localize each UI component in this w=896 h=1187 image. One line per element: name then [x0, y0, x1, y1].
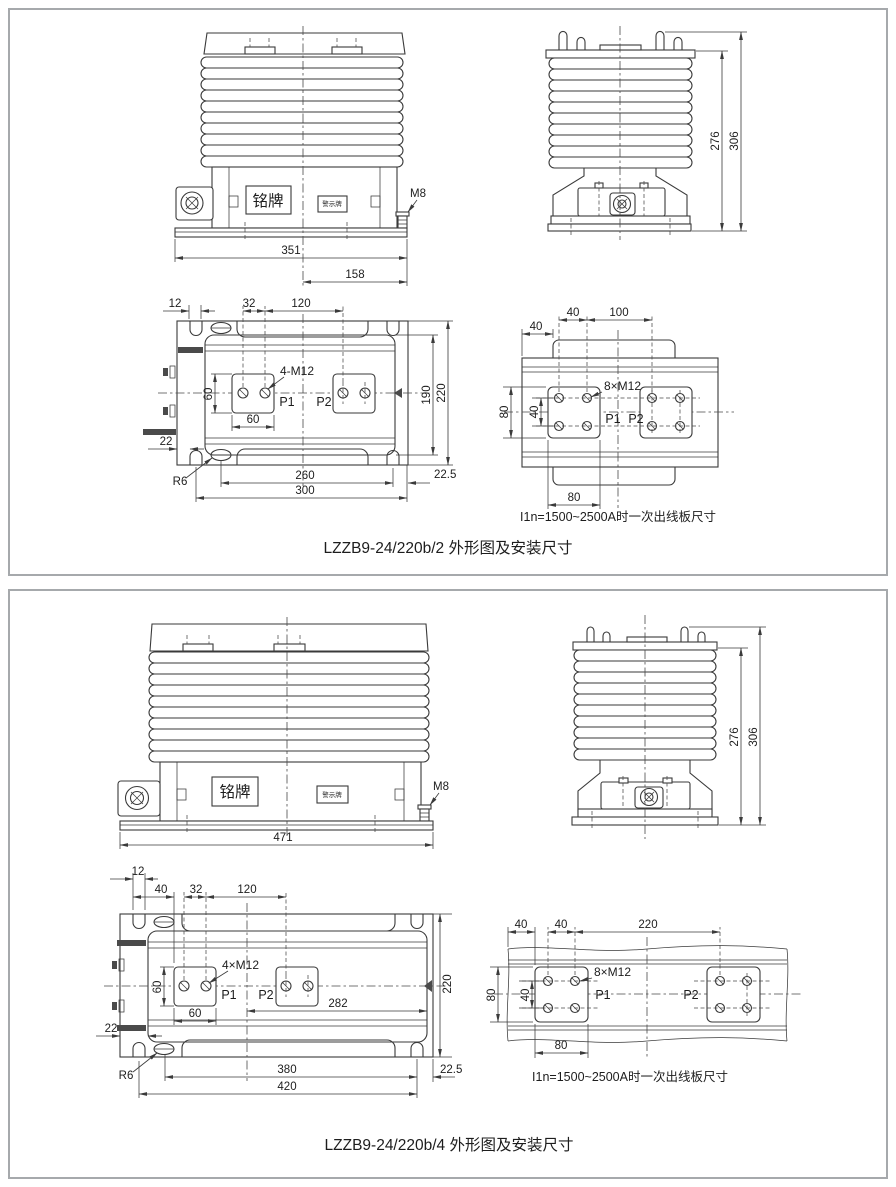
- label-p1: P1: [279, 395, 294, 409]
- dim-32: 32: [243, 298, 256, 310]
- dim-22-5: 22.5: [434, 469, 456, 481]
- dim-12: 12: [132, 866, 145, 878]
- dim-60h: 60: [189, 1008, 202, 1020]
- secondary-terminal-strip: [117, 940, 146, 946]
- outlet-pad-p1: [535, 967, 588, 1022]
- warning-plate: 警示牌: [317, 786, 348, 803]
- warning-text: 警示牌: [322, 790, 342, 799]
- drawing-sheet-220b2: 铭牌 警示牌 M8 351 158: [8, 8, 888, 576]
- front-view-220b4: 铭牌 警示牌 M8 471: [118, 617, 449, 849]
- label-p2: P2: [683, 988, 698, 1002]
- dim-300: 300: [295, 485, 314, 497]
- nameplate: 铭牌: [212, 777, 258, 806]
- dim-32: 32: [190, 884, 203, 896]
- dim-40-pitch: 40: [567, 307, 580, 319]
- side-view-220b2: 276 306: [546, 26, 747, 240]
- dim-260: 260: [295, 470, 314, 482]
- dim-22: 22: [160, 436, 173, 448]
- dim-80v: 80: [486, 989, 498, 1002]
- dim-100: 100: [609, 307, 628, 319]
- terminal-pad-p1: [174, 967, 216, 1006]
- dim-276: 276: [710, 131, 722, 150]
- primary-terminal-lug: [118, 781, 160, 816]
- warning-plate: 警示牌: [318, 196, 347, 212]
- detail-note: I1n=1500~2500A时一次出线板尺寸: [532, 1070, 728, 1084]
- dim-40-edge: 40: [530, 321, 543, 333]
- plan-view-220b2: P1 P2 12 32 120 4-M12 60 60 190 220 22 R…: [143, 298, 456, 502]
- thread-label: 8×M12: [604, 379, 641, 393]
- thread-label: 4×M12: [222, 958, 259, 972]
- detail-note: I1n=1500~2500A时一次出线板尺寸: [520, 510, 716, 524]
- terminal-plate-detail-220b2: 8×M12 P1 P2 40 40 100 80 40 80 I1n=1500~…: [499, 307, 734, 524]
- bellows-front: [149, 652, 429, 762]
- dim-40: 40: [155, 884, 168, 896]
- secondary-terminal-strip: [117, 1025, 146, 1031]
- terminal-plate-detail-220b4: 8×M12 P1 P2 40 40 220 80 40 80 I1n=1500~…: [486, 919, 802, 1084]
- bolt-label: M8: [410, 188, 426, 200]
- sheet-caption: LZZB9-24/220b/2 外形图及安装尺寸: [324, 539, 573, 557]
- nameplate: 铭牌: [246, 186, 291, 214]
- dim-306: 306: [748, 727, 760, 746]
- dim-80w: 80: [555, 1040, 568, 1052]
- dim-80v: 80: [499, 406, 511, 419]
- secondary-connector: [163, 366, 175, 417]
- outlet-pad-p2: [707, 967, 760, 1022]
- dim-190: 190: [421, 385, 433, 404]
- drawing-sheet-220b4: 铭牌 警示牌 M8 471: [8, 589, 888, 1179]
- dim-60h: 60: [247, 414, 260, 426]
- sheet-caption: LZZB9-24/220b/4 外形图及安装尺寸: [325, 1136, 574, 1154]
- bolt-label: M8: [433, 781, 449, 793]
- dim-22: 22: [105, 1023, 118, 1035]
- secondary-terminal-strip: [178, 347, 203, 353]
- plan-view-220b4: P1 P2 12 40 32 120 4×M12 60 60 282 220 2…: [96, 866, 462, 1098]
- terminal-pad-p2: [276, 967, 318, 1006]
- front-view-220b2: 铭牌 警示牌 M8 351 158: [175, 26, 426, 288]
- primary-terminal-lug: [176, 187, 213, 220]
- dim-306: 306: [729, 131, 741, 150]
- bellows-side: [549, 58, 692, 168]
- label-p1: P1: [605, 412, 620, 426]
- label-p1: P1: [595, 988, 610, 1002]
- nameplate-text: 铭牌: [219, 783, 250, 801]
- dim-120: 120: [237, 884, 256, 896]
- outlet-pad-p2: [640, 387, 692, 438]
- fillet-r6: R6: [119, 1070, 134, 1082]
- thread-label: 8×M12: [594, 965, 631, 979]
- dim-60v: 60: [203, 388, 215, 401]
- dim-40v: 40: [529, 406, 541, 419]
- dim-220: 220: [436, 383, 448, 402]
- thread-label: 4-M12: [280, 364, 314, 378]
- label-p1: P1: [221, 988, 236, 1002]
- fillet-r6: R6: [173, 476, 188, 488]
- dim-22-5: 22.5: [440, 1064, 462, 1076]
- dim-276: 276: [729, 727, 741, 746]
- secondary-terminal-strip: [143, 429, 176, 435]
- ground-bolt: [396, 212, 409, 228]
- dim-220: 220: [442, 974, 454, 993]
- warning-text: 警示牌: [322, 199, 342, 208]
- dim-471: 471: [273, 832, 292, 844]
- terminal-pad-p2: [333, 374, 375, 413]
- dim-420: 420: [277, 1081, 296, 1093]
- dim-351: 351: [281, 245, 300, 257]
- bellows-front: [201, 57, 403, 167]
- dim-60v: 60: [152, 981, 164, 994]
- dim-80w: 80: [568, 492, 581, 504]
- dim-380: 380: [277, 1064, 296, 1076]
- dim-40v: 40: [520, 989, 532, 1002]
- label-p2: P2: [628, 412, 643, 426]
- dim-158: 158: [345, 269, 364, 281]
- nameplate-text: 铭牌: [252, 192, 283, 210]
- dim-220: 220: [638, 919, 657, 931]
- label-p2: P2: [258, 988, 273, 1002]
- dim-120: 120: [291, 298, 310, 310]
- dim-40-pitch: 40: [555, 919, 568, 931]
- label-p2: P2: [316, 395, 331, 409]
- side-view-220b4: 276 306: [572, 615, 766, 839]
- dim-40-edge: 40: [515, 919, 528, 931]
- dim-282: 282: [328, 998, 347, 1010]
- ground-bolt: [418, 805, 431, 821]
- dim-12: 12: [169, 298, 182, 310]
